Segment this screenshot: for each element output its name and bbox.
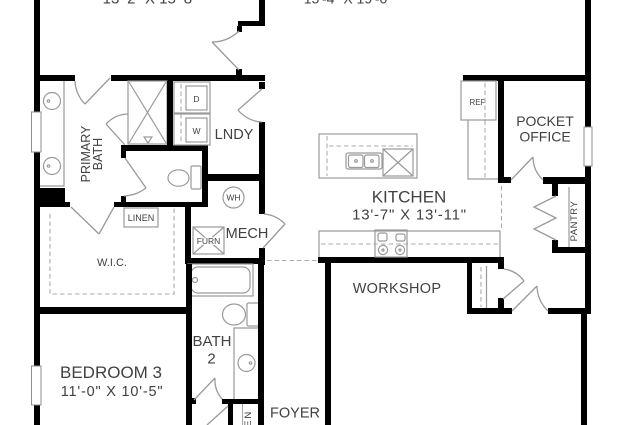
svg-text:D: D <box>193 94 199 104</box>
svg-text:WH: WH <box>226 193 240 203</box>
svg-text:WORKSHOP: WORKSHOP <box>353 281 442 297</box>
svg-text:PANTRY: PANTRY <box>569 201 580 242</box>
svg-text:BATH: BATH <box>91 138 105 170</box>
svg-text:FURN: FURN <box>197 236 221 246</box>
svg-text:LINEN: LINEN <box>128 213 155 223</box>
svg-text:11'-0" X 10'-5": 11'-0" X 10'-5" <box>61 384 164 400</box>
svg-text:REF: REF <box>470 98 486 107</box>
svg-text:BEDROOM 3: BEDROOM 3 <box>60 363 162 382</box>
svg-text:W.I.C.: W.I.C. <box>97 257 127 269</box>
svg-text:POCKET: POCKET <box>516 113 574 129</box>
svg-text:13'-2" X 15'-8": 13'-2" X 15'-8" <box>103 0 198 8</box>
svg-text:LNDY: LNDY <box>215 127 254 143</box>
svg-text:LINEN: LINEN <box>243 410 254 425</box>
svg-text:13'-7" X 13'-11": 13'-7" X 13'-11" <box>352 207 467 224</box>
svg-text:KITCHEN: KITCHEN <box>372 188 447 207</box>
svg-text:2: 2 <box>207 351 215 368</box>
svg-text:MECH: MECH <box>226 226 269 242</box>
svg-text:BATH: BATH <box>193 333 232 350</box>
svg-text:15'-4" X 19'-0": 15'-4" X 19'-0" <box>304 0 392 7</box>
svg-text:W: W <box>192 126 200 136</box>
svg-text:OFFICE: OFFICE <box>519 129 570 145</box>
svg-text:FOYER: FOYER <box>270 406 320 422</box>
